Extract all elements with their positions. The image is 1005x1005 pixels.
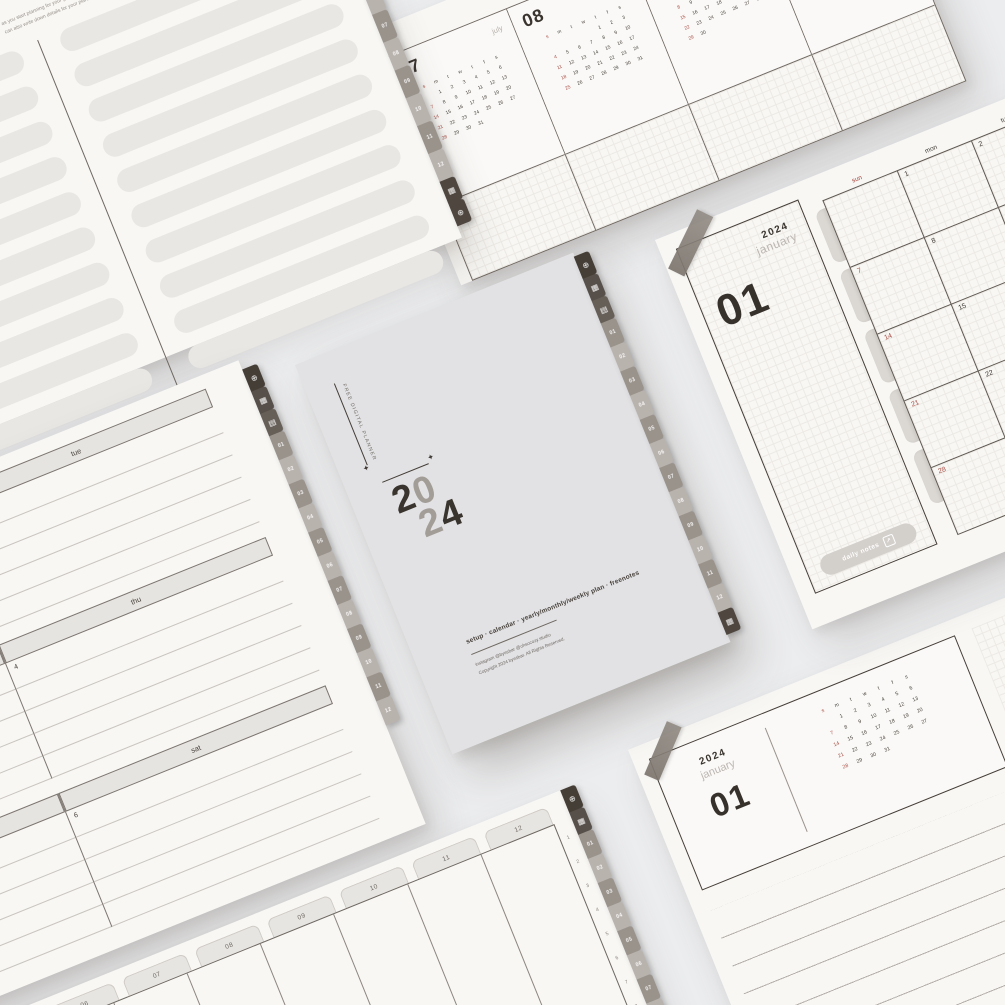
cover-year: 20 24 (388, 467, 468, 549)
section-tab-icon[interactable]: ▦ (718, 607, 742, 635)
sparkle-icon: ✦ (361, 463, 371, 474)
external-link-icon: ↗ (882, 534, 896, 548)
credit-line: Copyright 2024 byesbar. All Rights Reser… (477, 591, 675, 678)
planner-mockup-scene: 07 july smtwtfs1234567891011121314151617… (0, 0, 1005, 1005)
washi-tape (668, 209, 713, 276)
month-name: july (489, 21, 504, 36)
sparkle-icon: ✦ (426, 452, 436, 463)
month-tab[interactable]: 06 (49, 982, 119, 1005)
brand-label: FREE DIGITAL PLANNER (341, 383, 378, 462)
month-number: 08 (519, 4, 547, 32)
